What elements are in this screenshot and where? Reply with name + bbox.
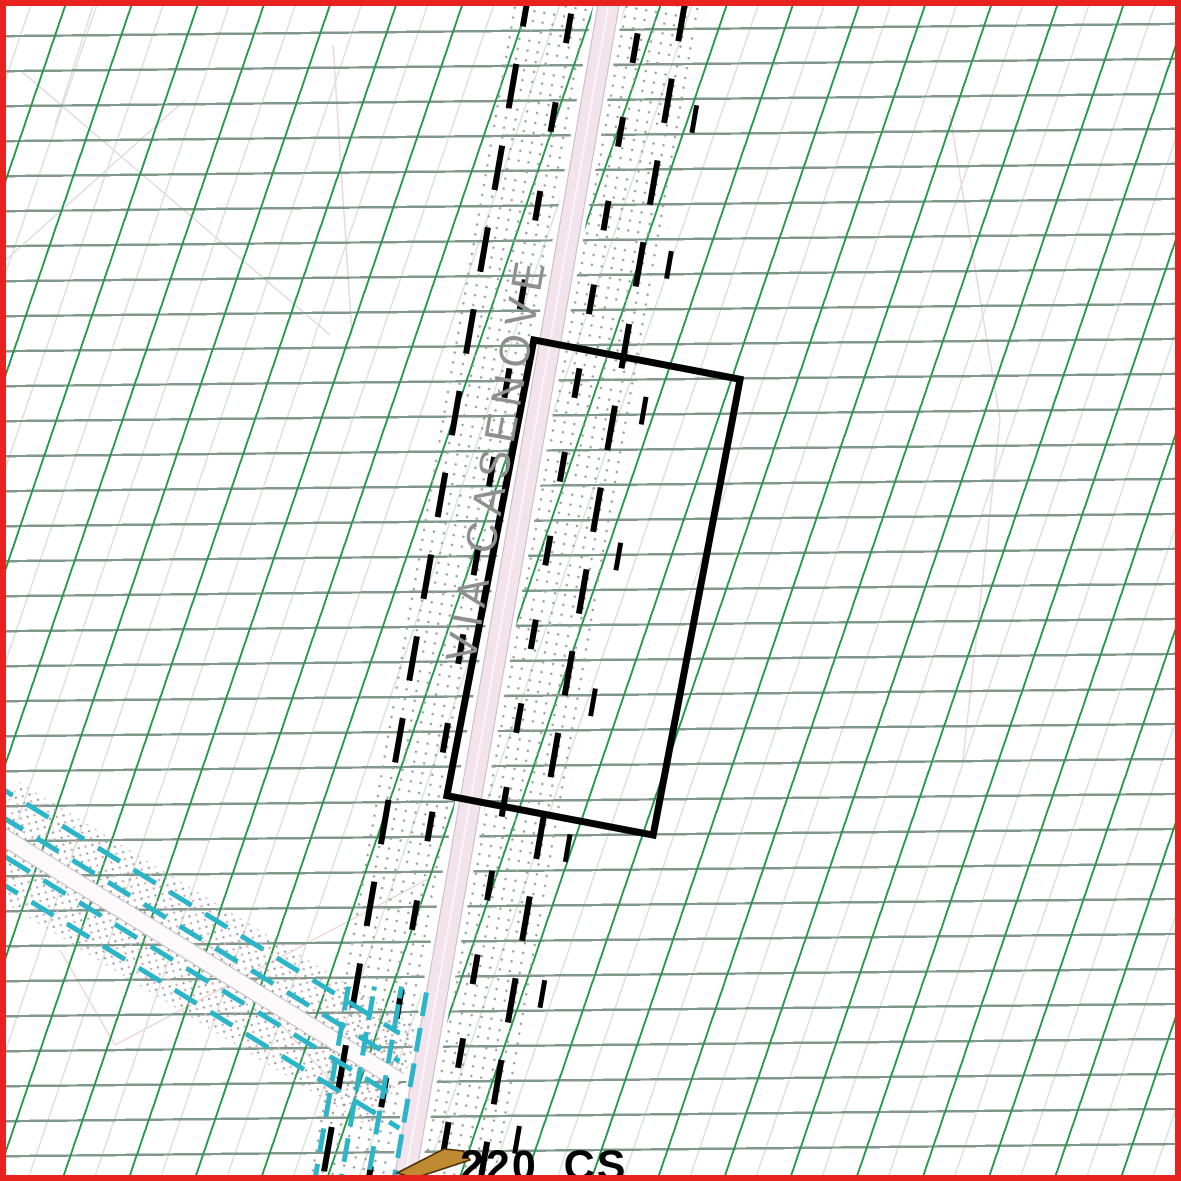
orange-marker-layer [0, 0, 1181, 1181]
bottom-code-label: 220_CS [460, 1142, 627, 1181]
map-canvas: VIA CASENOVE 220_CS [0, 0, 1181, 1181]
